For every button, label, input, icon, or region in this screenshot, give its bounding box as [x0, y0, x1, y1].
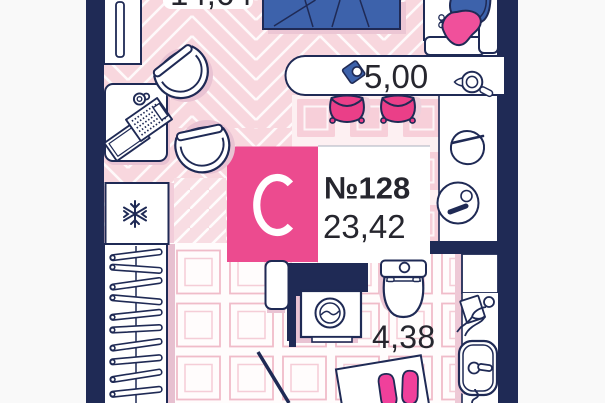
- svg-text:23,42: 23,42: [323, 208, 406, 245]
- svg-text:5,00: 5,00: [364, 58, 428, 95]
- svg-text:14,64: 14,64: [170, 0, 253, 12]
- svg-text:4,38: 4,38: [372, 319, 435, 355]
- svg-text:№128: №128: [324, 171, 410, 206]
